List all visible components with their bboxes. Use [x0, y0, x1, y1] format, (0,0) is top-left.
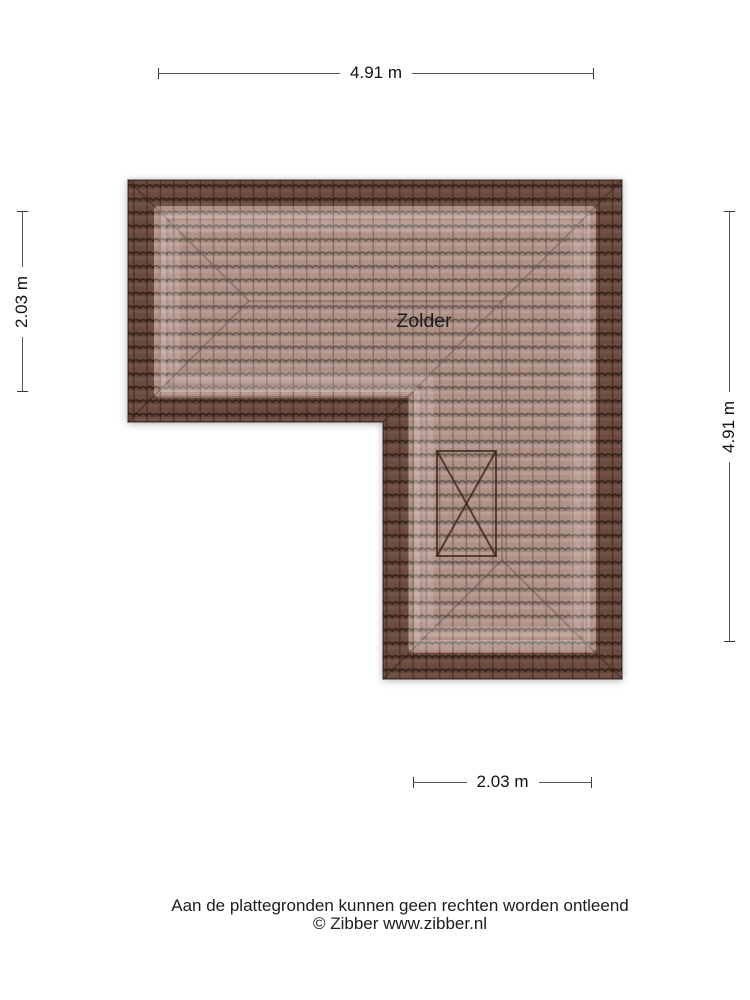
dimension-line — [414, 782, 467, 783]
footer-copyright: © Zibber www.zibber.nl — [25, 915, 750, 933]
dimension-line — [22, 212, 23, 267]
dimension-right: 4.91 m — [723, 211, 735, 642]
dimension-label-right: 4.91 m — [723, 392, 735, 462]
dimension-line — [159, 73, 340, 74]
dimension-cap — [17, 391, 28, 392]
dimension-left: 2.03 m — [16, 211, 28, 392]
floorplan-page: Zolder 4.91 m 2.03 m 4.91 m 2.03 m — [0, 0, 750, 1000]
dimension-top: 4.91 m — [158, 67, 594, 79]
dimension-bottom: 2.03 m — [413, 776, 592, 788]
dimension-line — [412, 73, 593, 74]
dimension-line — [729, 212, 730, 392]
room-label: Zolder — [396, 310, 452, 332]
dimension-label-left: 2.03 m — [16, 267, 28, 337]
dimension-line — [22, 337, 23, 392]
dimension-label-bottom: 2.03 m — [467, 776, 539, 788]
footer-disclaimer: Aan de plattegronden kunnen geen rechten… — [25, 897, 750, 915]
dimension-label-top: 4.91 m — [340, 67, 412, 79]
dimension-cap — [593, 68, 594, 79]
footer: Aan de plattegronden kunnen geen rechten… — [25, 897, 750, 933]
dimension-line — [729, 462, 730, 642]
attic-floor-overlay — [160, 212, 590, 646]
dimension-cap — [724, 641, 735, 642]
dimension-cap — [591, 777, 592, 788]
dimension-line — [539, 782, 592, 783]
floorplan-canvas: Zolder — [0, 0, 750, 1000]
